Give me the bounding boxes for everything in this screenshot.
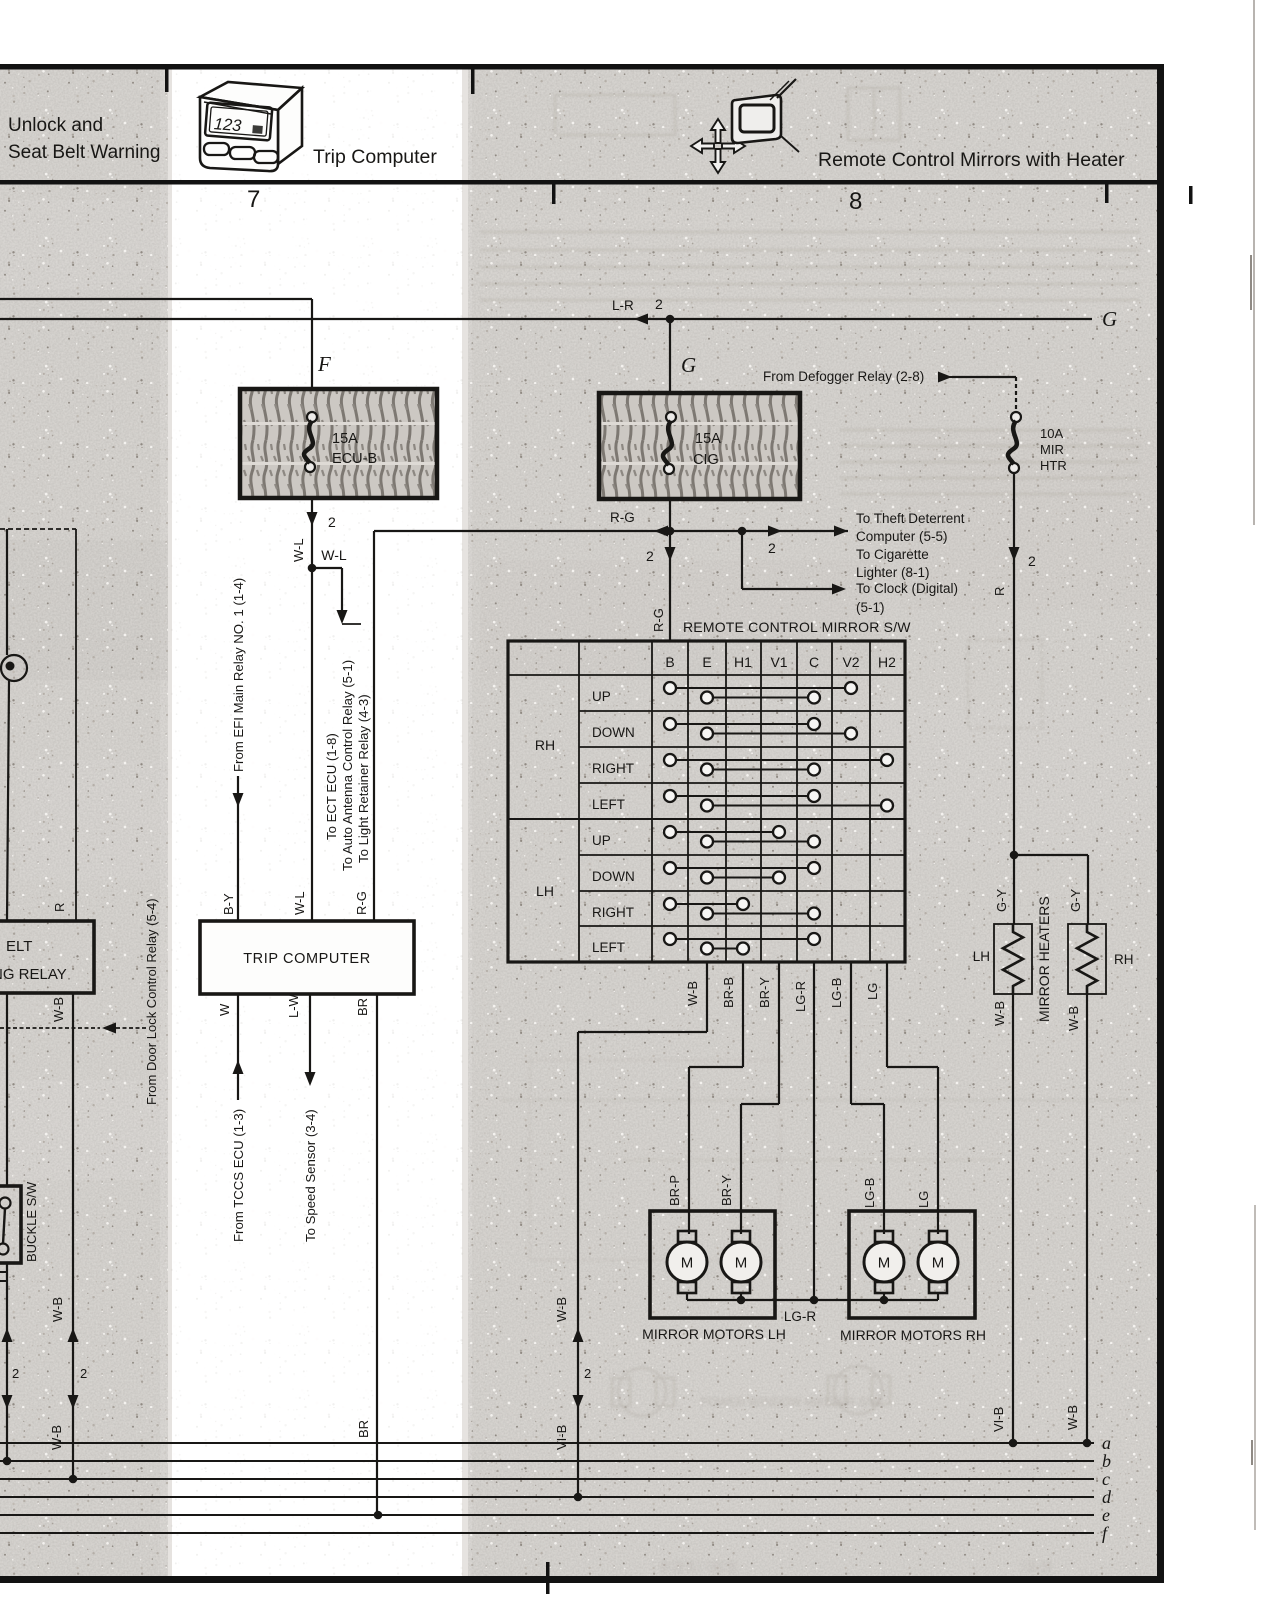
svg-text:To Theft Deterrent: To Theft Deterrent bbox=[856, 511, 965, 526]
svg-text:Lighter (8-1): Lighter (8-1) bbox=[856, 565, 930, 580]
svg-text:W-B: W-B bbox=[51, 997, 66, 1022]
svg-text:10A: 10A bbox=[1040, 426, 1063, 441]
svg-text:R-G: R-G bbox=[651, 608, 666, 632]
svg-text:15A: 15A bbox=[332, 431, 358, 447]
svg-text:NG RELAY: NG RELAY bbox=[0, 966, 67, 983]
svg-text:BR-Y: BR-Y bbox=[719, 1175, 734, 1206]
svg-text:W-B: W-B bbox=[1065, 1405, 1080, 1430]
svg-text:a: a bbox=[1102, 1433, 1111, 1453]
svg-text:2: 2 bbox=[768, 540, 776, 556]
svg-text:LH: LH bbox=[536, 883, 554, 899]
svg-text:Trip Computer: Trip Computer bbox=[313, 146, 437, 168]
svg-text:POWER WINDOW MASTER S/W: POWER WINDOW MASTER S/W bbox=[700, 1395, 881, 1409]
svg-text:H2: H2 bbox=[878, 654, 896, 670]
svg-text:G: G bbox=[1102, 307, 1117, 331]
svg-text:2: 2 bbox=[328, 514, 336, 530]
svg-text:Computer (5-5): Computer (5-5) bbox=[856, 529, 948, 544]
svg-text:To Cigarette: To Cigarette bbox=[856, 547, 929, 562]
svg-text:From Defogger Relay (2-8): From Defogger Relay (2-8) bbox=[763, 369, 924, 384]
svg-text:LH: LH bbox=[973, 949, 990, 964]
svg-text:C: C bbox=[809, 654, 819, 670]
svg-text:BR-B: BR-B bbox=[721, 977, 736, 1008]
svg-text:V1: V1 bbox=[770, 654, 787, 670]
svg-text:W-B: W-B bbox=[685, 981, 700, 1006]
svg-text:ELT: ELT bbox=[6, 938, 32, 955]
svg-text:TRIP COMPUTER: TRIP COMPUTER bbox=[243, 951, 371, 967]
svg-text:W-B: W-B bbox=[992, 1001, 1007, 1026]
svg-text:7: 7 bbox=[247, 186, 260, 213]
svg-text:▒░▒ ▒░ ░▒░▒: ▒░▒ ▒░ ░▒░▒ bbox=[660, 1560, 736, 1573]
svg-text:W-B: W-B bbox=[49, 1425, 64, 1450]
svg-text:VI-B: VI-B bbox=[554, 1425, 569, 1450]
svg-text:d: d bbox=[1102, 1487, 1112, 1507]
svg-text:2: 2 bbox=[1028, 553, 1036, 569]
svg-text:Unlock and: Unlock and bbox=[8, 115, 103, 136]
svg-text:LEFT: LEFT bbox=[592, 940, 625, 955]
svg-text:From TCCS ECU (1-3): From TCCS ECU (1-3) bbox=[231, 1109, 246, 1242]
svg-text:R-G: R-G bbox=[610, 510, 635, 525]
svg-text:Seat Belt Warning: Seat Belt Warning bbox=[8, 142, 160, 163]
svg-text:To Speed Sensor (3-4): To Speed Sensor (3-4) bbox=[303, 1109, 318, 1242]
svg-text:W-B: W-B bbox=[50, 1297, 65, 1322]
svg-text:2: 2 bbox=[646, 548, 654, 564]
svg-text:(5-1): (5-1) bbox=[856, 600, 885, 615]
svg-text:To Clock (Digital): To Clock (Digital) bbox=[856, 581, 958, 596]
svg-text:LG-B: LG-B bbox=[829, 978, 844, 1008]
svg-text:MIRROR HEATERS: MIRROR HEATERS bbox=[1036, 896, 1052, 1022]
svg-text:c: c bbox=[1102, 1469, 1110, 1489]
svg-text:G-Y: G-Y bbox=[1068, 889, 1083, 912]
svg-text:BR: BR bbox=[356, 1420, 371, 1438]
svg-text:R-G: R-G bbox=[354, 891, 369, 915]
svg-text:HTR: HTR bbox=[1040, 458, 1067, 473]
svg-text:V2: V2 bbox=[842, 654, 859, 670]
svg-text:LG-B: LG-B bbox=[862, 1178, 877, 1208]
svg-text:CIG: CIG bbox=[693, 452, 719, 468]
svg-text:To ECT ECU (1-8): To ECT ECU (1-8) bbox=[324, 733, 339, 840]
svg-text:REMOTE CONTROL MIRROR S/W: REMOTE CONTROL MIRROR S/W bbox=[683, 619, 911, 635]
svg-text:W-L: W-L bbox=[291, 538, 306, 562]
svg-text:8: 8 bbox=[849, 188, 862, 215]
svg-text:H1: H1 bbox=[734, 654, 752, 670]
svg-text:W-B: W-B bbox=[554, 1297, 569, 1322]
svg-text:LEFT: LEFT bbox=[592, 797, 625, 812]
svg-text:M: M bbox=[932, 1255, 945, 1272]
svg-text:BR: BR bbox=[355, 998, 370, 1016]
svg-text:RIGHT: RIGHT bbox=[592, 905, 634, 920]
svg-text:15A: 15A bbox=[695, 431, 721, 447]
svg-text:RIGHT: RIGHT bbox=[592, 761, 634, 776]
svg-text:G: G bbox=[681, 353, 696, 377]
svg-text:M: M bbox=[878, 1255, 891, 1272]
svg-text:R: R bbox=[992, 587, 1007, 596]
svg-text:F: F bbox=[317, 352, 331, 376]
svg-text:DOWN: DOWN bbox=[592, 725, 635, 740]
svg-text:M: M bbox=[681, 1255, 694, 1272]
svg-text:W-L: W-L bbox=[292, 891, 307, 915]
svg-text:2: 2 bbox=[80, 1366, 87, 1381]
svg-text:B-Y: B-Y bbox=[221, 893, 236, 915]
svg-text:UP: UP bbox=[592, 833, 611, 848]
svg-text:W: W bbox=[217, 1003, 232, 1016]
svg-text:W-L: W-L bbox=[321, 547, 347, 563]
svg-text:L-R: L-R bbox=[612, 298, 634, 313]
svg-text:RH: RH bbox=[535, 737, 555, 753]
svg-text:G-Y: G-Y bbox=[994, 889, 1009, 912]
svg-text:2: 2 bbox=[12, 1366, 19, 1381]
svg-text:MIRROR MOTORS RH: MIRROR MOTORS RH bbox=[840, 1327, 986, 1343]
svg-text:b: b bbox=[1102, 1451, 1111, 1471]
svg-text:BR-Y: BR-Y bbox=[757, 977, 772, 1008]
svg-text:R: R bbox=[52, 903, 67, 912]
svg-text:e: e bbox=[1102, 1505, 1110, 1525]
svg-text:BR-P: BR-P bbox=[667, 1175, 682, 1206]
svg-text:ECU-B: ECU-B bbox=[332, 451, 377, 467]
svg-text:LG-R: LG-R bbox=[784, 1309, 817, 1324]
svg-text:VI-B: VI-B bbox=[991, 1407, 1006, 1432]
svg-text:E: E bbox=[702, 654, 711, 670]
svg-text:MIRROR MOTORS LH: MIRROR MOTORS LH bbox=[642, 1326, 786, 1342]
svg-text:UP: UP bbox=[592, 689, 611, 704]
svg-text:LG: LG bbox=[865, 983, 880, 1000]
svg-text:To Light Retainer Relay (4-3): To Light Retainer Relay (4-3) bbox=[356, 694, 371, 863]
svg-text:W-B: W-B bbox=[1066, 1006, 1081, 1031]
svg-text:To Auto Antenna Control Relay: To Auto Antenna Control Relay (5-1) bbox=[340, 660, 355, 871]
svg-text:DOWN: DOWN bbox=[592, 869, 635, 884]
svg-text:M: M bbox=[735, 1255, 748, 1272]
svg-text:BUCKLE S/W: BUCKLE S/W bbox=[24, 1181, 39, 1262]
svg-text:L-W: L-W bbox=[286, 993, 301, 1018]
svg-text:2: 2 bbox=[584, 1366, 591, 1381]
svg-text:From EFI Main Relay NO. 1 (1-4: From EFI Main Relay NO. 1 (1-4) bbox=[231, 578, 246, 772]
svg-text:123: 123 bbox=[213, 115, 243, 135]
svg-text:RH: RH bbox=[1114, 952, 1134, 967]
svg-text:From Door Lock Control Relay (: From Door Lock Control Relay (5-4) bbox=[144, 898, 159, 1105]
svg-text:░▒░▒: ░▒░▒ bbox=[1020, 1560, 1051, 1573]
svg-text:LG: LG bbox=[916, 1191, 931, 1208]
svg-text:B: B bbox=[665, 654, 674, 670]
svg-text:LG-R: LG-R bbox=[793, 981, 808, 1012]
svg-text:MIR: MIR bbox=[1040, 442, 1064, 457]
svg-text:Remote Control Mirrors with He: Remote Control Mirrors with Heater bbox=[818, 149, 1125, 171]
svg-text:2: 2 bbox=[655, 296, 663, 312]
